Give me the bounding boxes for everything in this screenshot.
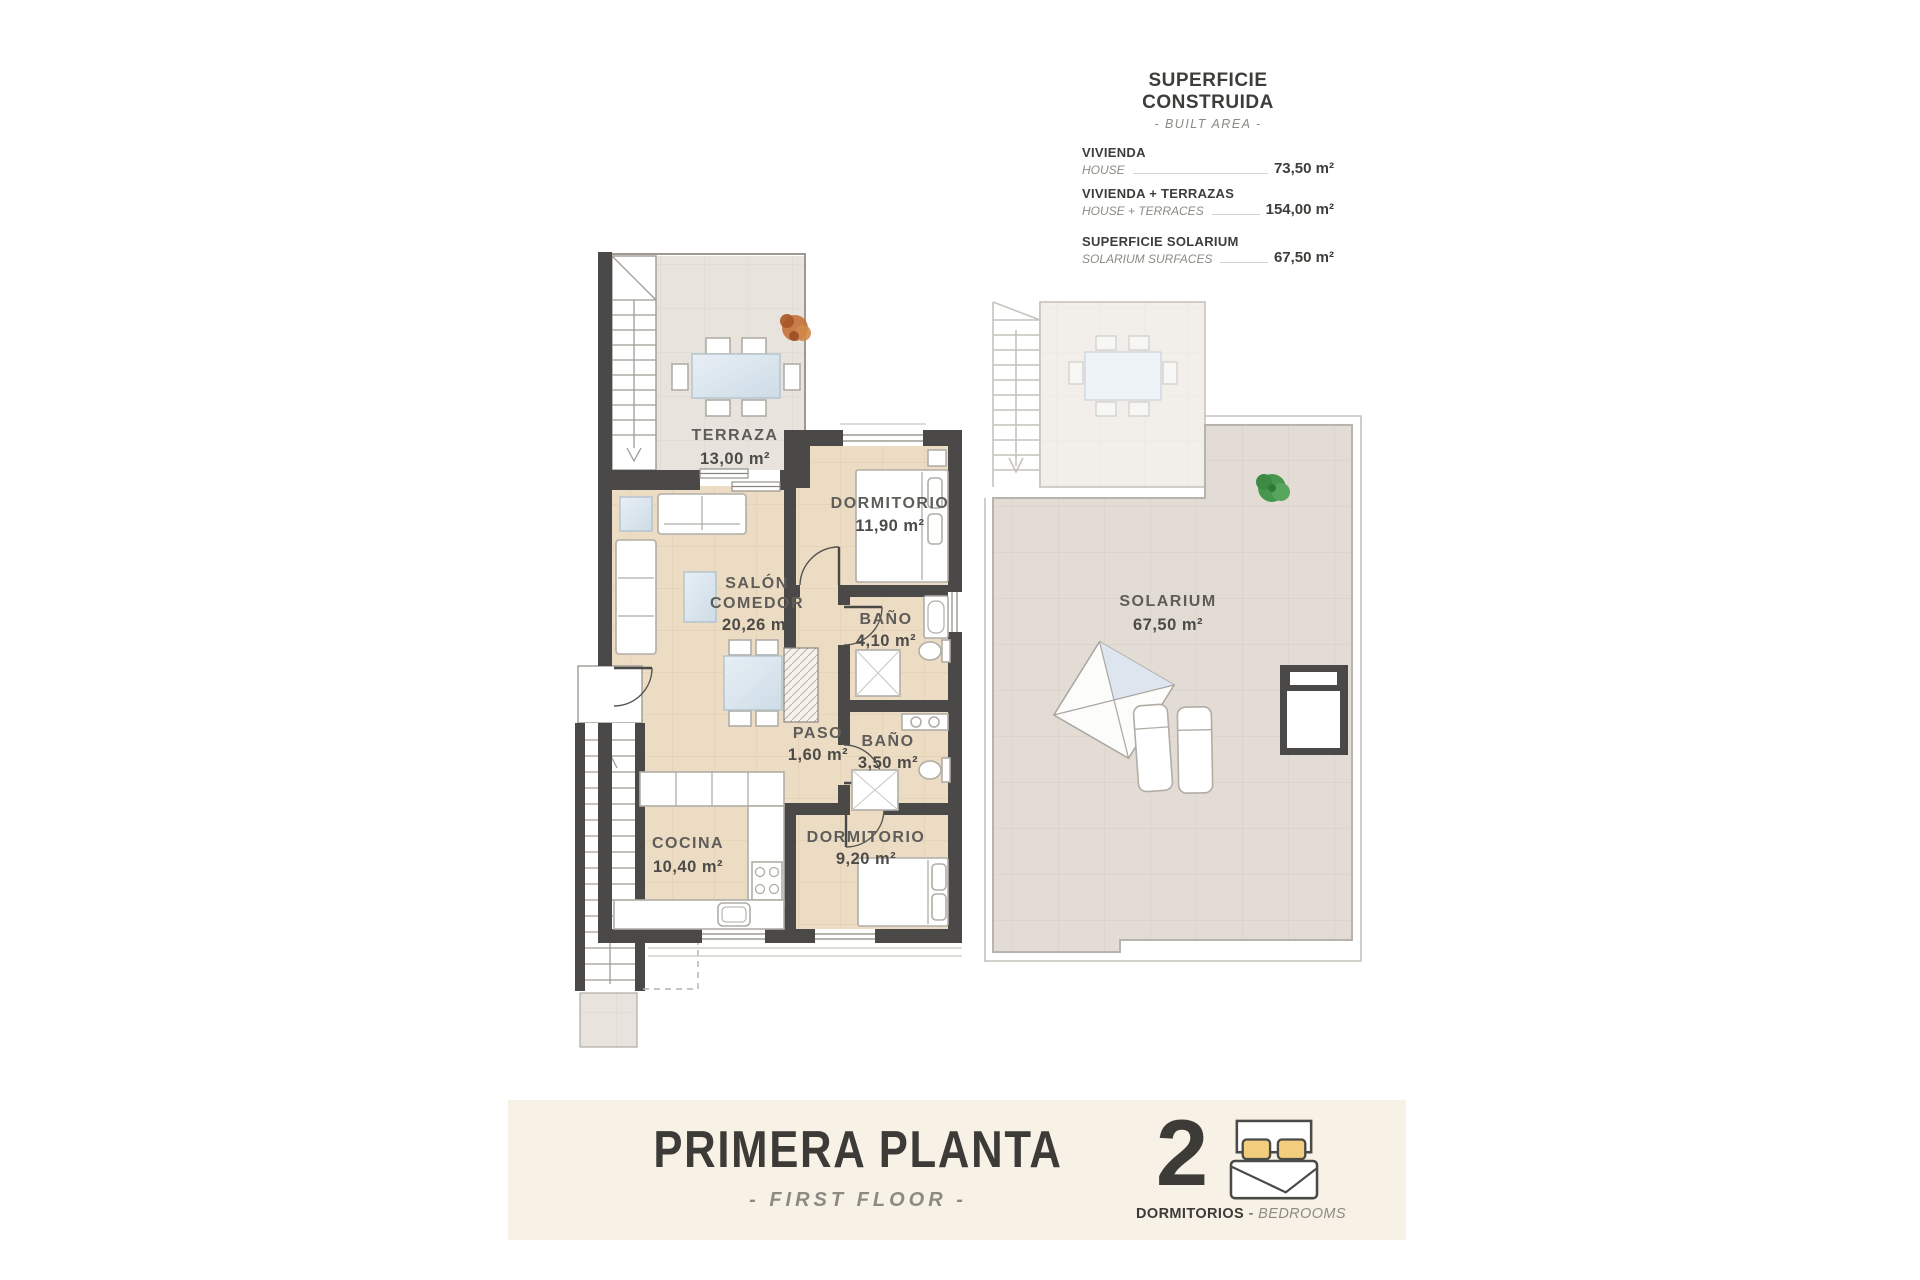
paso-label: PASO	[793, 725, 843, 742]
salon-area: 20,26 m²	[722, 616, 792, 634]
footer-band: PRIMERA PLANTA - FIRST FLOOR - 2 DORMITO…	[508, 1100, 1406, 1240]
dormitorio1-area: 11,90 m²	[855, 517, 924, 535]
floor-plan-page: SUPERFICIE CONSTRUIDA - BUILT AREA - VIV…	[0, 0, 1920, 1280]
ghost-terrace	[1040, 302, 1205, 487]
floor-subtitle: - FIRST FLOOR -	[548, 1189, 1168, 1212]
paso-area: 1,60 m²	[788, 746, 848, 764]
floor-title-block: PRIMERA PLANTA - FIRST FLOOR -	[548, 1120, 1168, 1212]
bedrooms-caption: DORMITORIOS - BEDROOMS	[1106, 1206, 1376, 1222]
stair-bulkhead	[1280, 665, 1348, 755]
terraza-area: 13,00 m²	[700, 450, 770, 468]
bano1-area: 4,10 m²	[856, 632, 916, 650]
bedrooms-separator: -	[1244, 1206, 1258, 1222]
terraza-label: TERRAZA	[692, 427, 779, 444]
bano1-label: BAÑO	[859, 608, 912, 628]
bed-icon	[1222, 1118, 1326, 1206]
bedroom2-furniture	[858, 858, 948, 926]
stove	[752, 862, 782, 900]
dormitorio2-label: DORMITORIO	[807, 829, 926, 846]
solarium-plan: SOLARIUM 67,50 m²	[984, 302, 1361, 961]
ghost-stairs	[993, 302, 1040, 487]
bano2-area: 3,50 m²	[858, 754, 918, 772]
floor-title: PRIMERA PLANTA	[598, 1120, 1119, 1180]
dormitorio1-label: DORMITORIO	[831, 495, 950, 512]
bedrooms-block: 2 DORMITORIOS - BEDROOMS	[1106, 1108, 1376, 1222]
cocina-area: 10,40 m²	[653, 858, 723, 876]
apartment-plan: TERRAZA 13,00 m² DORMITORIO 11,90 m² SAL…	[575, 252, 962, 1047]
bedrooms-label-es: DORMITORIOS	[1136, 1206, 1244, 1222]
cocina-label: COCINA	[652, 835, 724, 852]
salon-label-1: SALÓN	[725, 573, 789, 592]
dormitorio2-area: 9,20 m²	[836, 850, 896, 868]
bedroom1-furniture	[856, 450, 948, 582]
bedrooms-label-en: BEDROOMS	[1258, 1206, 1346, 1222]
wardrobe	[784, 648, 818, 722]
floor-plan-svg: TERRAZA 13,00 m² DORMITORIO 11,90 m² SAL…	[0, 0, 1920, 1280]
bedrooms-count: 2	[1156, 1108, 1208, 1197]
bano2-label: BAÑO	[861, 730, 914, 750]
solarium-label: SOLARIUM	[1119, 593, 1216, 610]
salon-label-2: COMEDOR	[710, 595, 804, 612]
sink	[718, 903, 750, 926]
solarium-area: 67,50 m²	[1133, 616, 1203, 634]
